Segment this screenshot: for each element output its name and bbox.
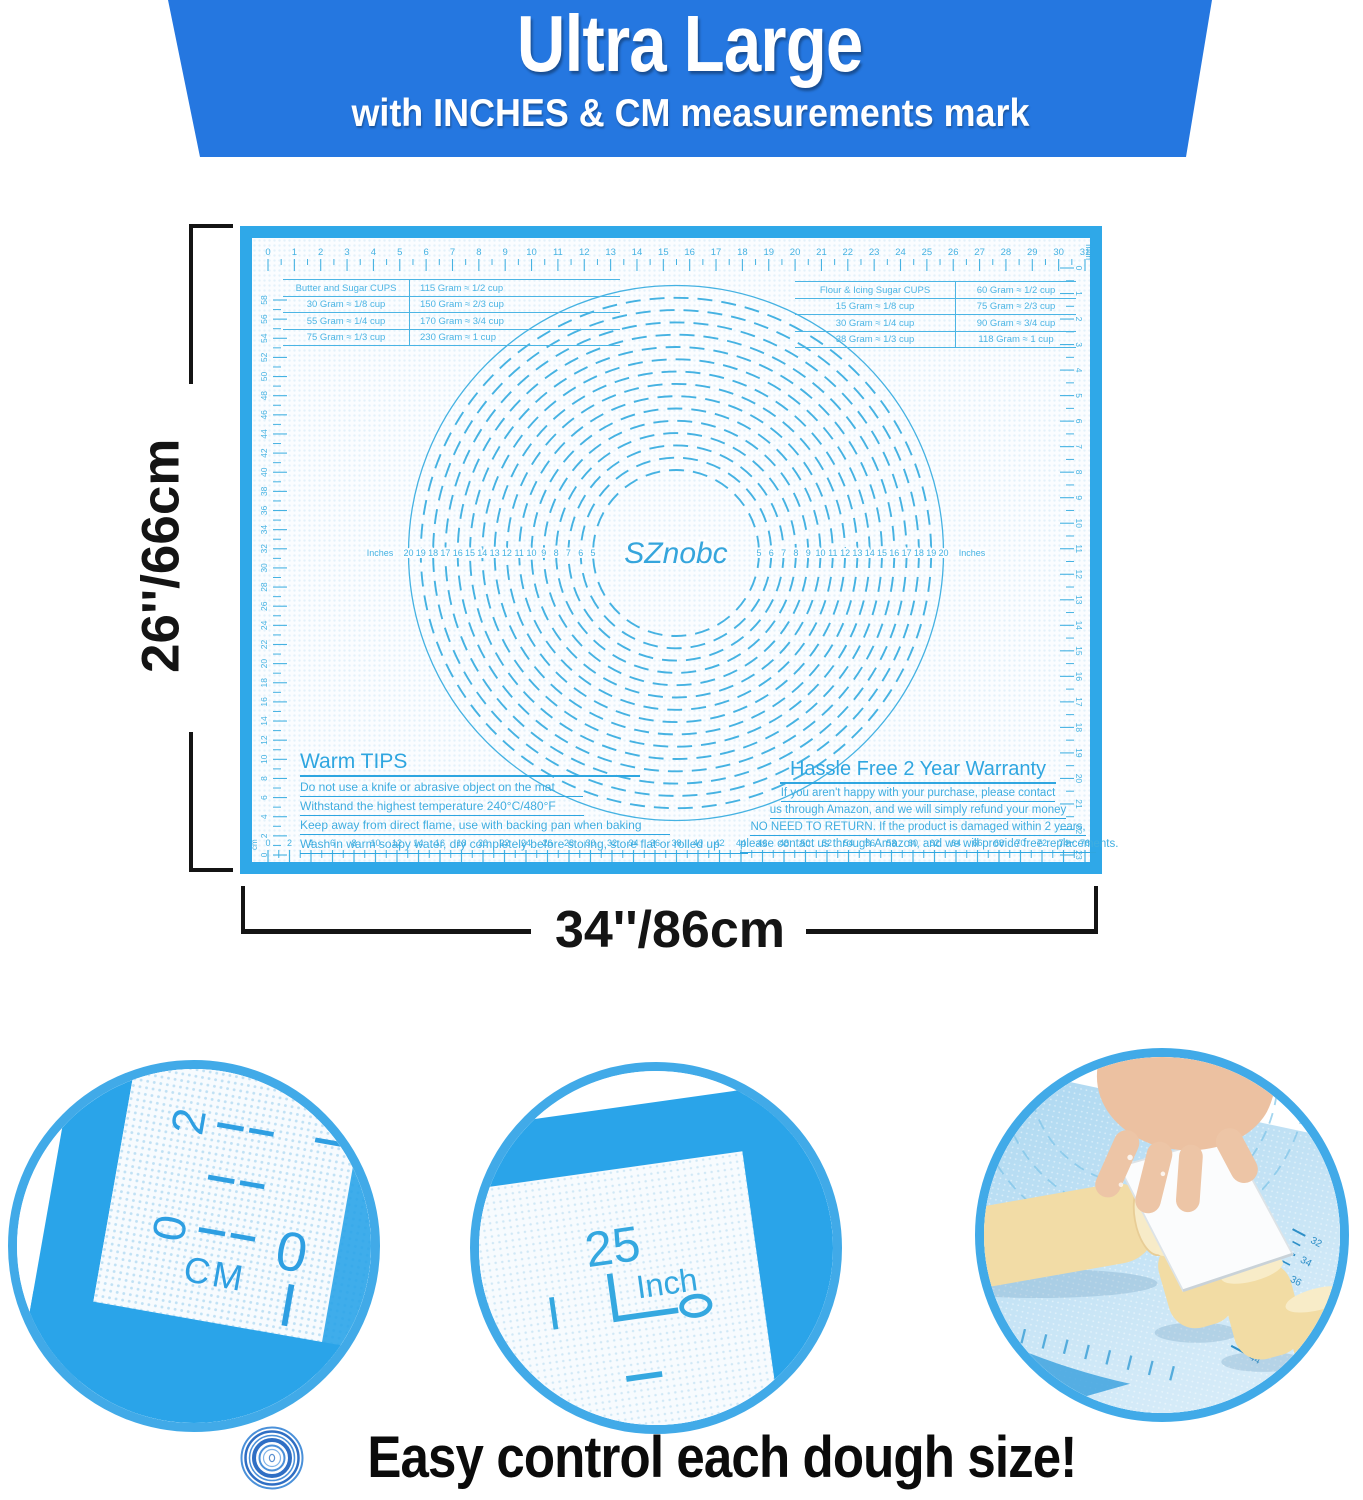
- warm-tips-line: Withstand the highest temperature 240°C/…: [300, 799, 584, 816]
- ruler-number: 56: [259, 314, 269, 324]
- ruler-number: 10: [526, 247, 537, 258]
- width-dimension-line: [806, 929, 1098, 934]
- ring-number: 13: [852, 548, 862, 558]
- ruler-number: 16: [259, 697, 269, 707]
- ruler-number: 20: [259, 659, 269, 669]
- ring-number: 17: [440, 548, 450, 558]
- ruler-number: 34: [259, 525, 269, 535]
- ruler-number: 24: [259, 620, 269, 630]
- ruler-number: 20: [790, 247, 801, 258]
- warranty-line: If you aren't happy with your purchase, …: [781, 787, 1056, 802]
- warm-tips-line: Wash in warm soapy water, dry completely…: [300, 837, 748, 854]
- ruler-number: 23: [869, 247, 880, 258]
- ruler-number: 44: [259, 429, 269, 439]
- ruler-number: 1: [292, 247, 297, 258]
- inch-closeup-callout: 25 Inch: [470, 1062, 842, 1434]
- table-cell: 170 Gram ≈ 3/4 cup: [410, 313, 620, 329]
- table-row: Flour & Icing Sugar CUPS60 Gram ≈ 1/2 cu…: [795, 282, 1076, 299]
- ruler-number: 8: [476, 247, 481, 258]
- ruler-number: 9: [503, 247, 508, 258]
- ruler-number: 0: [265, 838, 270, 848]
- table-cell: 15 Gram ≈ 1/8 cup: [795, 299, 956, 315]
- product-image-page: Ultra Large with INCHES & CM measurement…: [0, 0, 1363, 1500]
- warranty-title: Hassle Free 2 Year Warranty: [780, 758, 1056, 784]
- ruler-number: 15: [658, 247, 669, 258]
- table-cell: 90 Gram ≈ 3/4 cup: [956, 315, 1076, 331]
- table-row: 75 Gram ≈ 1/3 cup230 Gram ≈ 1 cup: [283, 330, 620, 347]
- footer-text: Easy control each dough size!: [367, 1424, 1076, 1491]
- ruler-number: 3: [344, 247, 349, 258]
- banner: Ultra Large with INCHES & CM measurement…: [150, 0, 1230, 157]
- ring-number: 6: [578, 548, 583, 558]
- ring-unit-label: Inches: [367, 548, 394, 558]
- ruler-number: 40: [259, 467, 269, 477]
- table-cell: 118 Gram ≈ 1 cup: [956, 332, 1076, 348]
- ruler-number: 8: [259, 776, 269, 781]
- ruler-number: 18: [1074, 723, 1084, 733]
- ring-number: 6: [769, 548, 774, 558]
- ruler-number: 12: [1074, 570, 1084, 580]
- warm-tips-line: Keep away from direct flame, use with ba…: [300, 818, 670, 835]
- height-dimension-line: [189, 226, 193, 384]
- ruler-number: 21: [816, 247, 827, 258]
- ring-number: 18: [914, 548, 924, 558]
- flour-sugar-conversion-table: Flour & Icing Sugar CUPS60 Gram ≈ 1/2 cu…: [795, 281, 1076, 348]
- ruler-number: 0: [1074, 266, 1084, 271]
- width-dimension-cap: [1094, 886, 1098, 934]
- dough-cutting-photo: 32343638404244: [984, 1057, 1340, 1413]
- ruler-number: 6: [259, 795, 269, 800]
- table-cell: 75 Gram ≈ 1/3 cup: [283, 330, 410, 346]
- warranty-line: us through Amazon, and we will simply re…: [770, 804, 1067, 819]
- ruler-number: 17: [711, 247, 722, 258]
- table-row: 15 Gram ≈ 1/8 cup75 Gram ≈ 2/3 cup: [795, 299, 1076, 316]
- ruler-number: 10: [259, 754, 269, 764]
- table-row: 30 Gram ≈ 1/4 cup90 Gram ≈ 3/4 cup: [795, 315, 1076, 332]
- ruler-number: 18: [737, 247, 748, 258]
- footer-caption: Easy control each dough size!: [0, 1424, 1363, 1491]
- ruler-number: 7: [450, 247, 455, 258]
- ring-number: 9: [806, 548, 811, 558]
- ring-number: 12: [502, 548, 512, 558]
- table-cell: 115 Gram ≈ 1/2 cup: [410, 280, 620, 296]
- height-dimension-cap: [189, 224, 233, 228]
- ring-number: 10: [815, 548, 825, 558]
- ruler-number: 9: [1074, 495, 1084, 500]
- ruler-number: 17: [1074, 697, 1084, 707]
- warranty-block: Hassle Free 2 Year Warranty If you aren'…: [740, 758, 1096, 855]
- ruler-number: 5: [397, 247, 402, 258]
- ruler-number: 54: [259, 333, 269, 343]
- table-cell: 150 Gram ≈ 2/3 cup: [410, 297, 620, 313]
- ruler-number: 24: [895, 247, 906, 258]
- warm-tips-title: Warm TIPS: [300, 750, 640, 777]
- ring-number: 7: [781, 548, 786, 558]
- ruler-unit: Inch: [1084, 244, 1090, 260]
- ring-number: 12: [840, 548, 850, 558]
- ring-number: 11: [515, 548, 524, 558]
- ring-number: 20: [938, 548, 948, 558]
- ring-number: 11: [828, 548, 837, 558]
- ruler-number: 4: [259, 814, 269, 819]
- table-row: Butter and Sugar CUPS115 Gram ≈ 1/2 cup: [283, 280, 620, 297]
- inch-closeup-graphic: 25 Inch: [479, 1071, 833, 1425]
- table-row: 38 Gram ≈ 1/3 cup118 Gram ≈ 1 cup: [795, 332, 1076, 349]
- table-cell: 30 Gram ≈ 1/4 cup: [795, 315, 956, 331]
- baking-mat: 0123456789101112131415161718192021222324…: [240, 226, 1102, 874]
- ruler-number: 58: [259, 295, 269, 305]
- ring-number: 15: [465, 548, 475, 558]
- banner-title: Ultra Large: [517, 4, 863, 84]
- ruler-number: 2: [287, 838, 292, 848]
- ruler-number: 48: [259, 391, 269, 401]
- ring-number: 5: [756, 548, 761, 558]
- warranty-line: please contact us through Amazon, and we…: [740, 838, 1096, 853]
- butter-sugar-conversion-table: Butter and Sugar CUPS115 Gram ≈ 1/2 cup3…: [283, 279, 620, 346]
- ring-number: 20: [403, 548, 413, 558]
- table-cell: 60 Gram ≈ 1/2 cup: [956, 282, 1076, 298]
- ruler-number: 11: [1074, 544, 1084, 553]
- table-cell: 230 Gram ≈ 1 cup: [410, 330, 620, 346]
- table-cell: Butter and Sugar CUPS: [283, 280, 410, 296]
- ruler-number: 14: [1074, 621, 1084, 631]
- ruler-number: 13: [1074, 595, 1084, 605]
- ruler-number: 10: [1074, 518, 1084, 528]
- table-cell: 38 Gram ≈ 1/3 cup: [795, 332, 956, 348]
- ring-number: 8: [554, 548, 559, 558]
- ruler-number: 46: [259, 410, 269, 420]
- table-cell: 75 Gram ≈ 2/3 cup: [956, 299, 1076, 315]
- warm-tips-line: Do not use a knife or abrasive object on…: [300, 780, 583, 797]
- ruler-number: 6: [423, 247, 428, 258]
- ruler-number: 14: [632, 247, 643, 258]
- ring-number: 14: [865, 548, 875, 558]
- ruler-number: 12: [579, 247, 590, 258]
- ruler-number: 16: [1074, 672, 1084, 682]
- ruler-number: 13: [605, 247, 616, 258]
- ruler-number: 16: [684, 247, 695, 258]
- ruler-number: 8: [1074, 470, 1084, 475]
- ruler-number: 26: [259, 601, 269, 611]
- height-dimension-cap: [189, 868, 233, 872]
- ruler-number: 15: [1074, 646, 1084, 656]
- ruler-number: 18: [259, 678, 269, 688]
- ruler-number: 0: [265, 247, 270, 258]
- table-cell: 30 Gram ≈ 1/8 cup: [283, 297, 410, 313]
- ruler-number: 32: [259, 544, 269, 554]
- ruler-unit: cm: [252, 839, 259, 850]
- warm-tips-block: Warm TIPS Do not use a knife or abrasive…: [300, 750, 748, 856]
- ruler-number: 4: [371, 247, 376, 258]
- width-dimension-line: [243, 929, 531, 934]
- brand-logo: SZnobc: [624, 537, 727, 570]
- ruler-number: 6: [1074, 419, 1084, 424]
- ruler-number: 28: [259, 582, 269, 592]
- warranty-line: NO NEED TO RETURN. If the product is dam…: [750, 821, 1085, 836]
- ruler-number: 11: [553, 247, 563, 258]
- ruler-number: 12: [259, 735, 269, 745]
- ruler-number: 36: [259, 506, 269, 516]
- ring-number: 7: [566, 548, 571, 558]
- width-dimension-label: 34''/86cm: [520, 894, 820, 966]
- ruler-number: 22: [259, 639, 269, 649]
- cm-closeup-graphic: 2 0 CM 0: [17, 1069, 371, 1423]
- ruler-number: 22: [843, 247, 854, 258]
- ruler-number: 38: [259, 486, 269, 496]
- ring-number: 5: [590, 548, 595, 558]
- banner-subtitle: with INCHES & CM measurements mark: [351, 92, 1029, 136]
- ruler-number: 52: [259, 352, 269, 362]
- ring-unit-label: Inches: [959, 548, 986, 558]
- ruler-number: 30: [259, 563, 269, 573]
- ring-number: 19: [926, 548, 936, 558]
- height-dimension-line: [189, 732, 193, 872]
- ruler-number: 19: [763, 247, 774, 258]
- table-row: 55 Gram ≈ 1/4 cup170 Gram ≈ 3/4 cup: [283, 313, 620, 330]
- dough-cutting-photo-callout: 32343638404244: [975, 1048, 1349, 1422]
- width-dimension-cap: [241, 886, 245, 934]
- inch-mark-25: 25: [581, 1216, 643, 1278]
- ruler-number: 27: [974, 247, 985, 258]
- ring-number: 16: [889, 548, 899, 558]
- ruler-number: 26: [948, 247, 959, 258]
- ruler-number: 2: [318, 247, 323, 258]
- concentric-circles-icon: [239, 1425, 305, 1491]
- ruler-number: 7: [1074, 444, 1084, 449]
- table-row: 30 Gram ≈ 1/8 cup150 Gram ≈ 2/3 cup: [283, 297, 620, 314]
- table-cell: Flour & Icing Sugar CUPS: [795, 282, 956, 298]
- ring-number: 10: [526, 548, 536, 558]
- ruler-number: 5: [1074, 393, 1084, 398]
- ring-number: 14: [477, 548, 487, 558]
- ruler-number: 19: [1074, 748, 1084, 758]
- ruler-number: 29: [1027, 247, 1038, 258]
- ring-number: 13: [490, 548, 500, 558]
- table-cell: 55 Gram ≈ 1/4 cup: [283, 313, 410, 329]
- ruler-number: 42: [259, 448, 269, 458]
- ruler-number: 14: [259, 716, 269, 726]
- ring-number: 15: [877, 548, 887, 558]
- ring-number: 18: [428, 548, 438, 558]
- ring-number: 19: [416, 548, 426, 558]
- ruler-number: 50: [259, 372, 269, 382]
- ruler-number: 4: [1074, 368, 1084, 373]
- ruler-number: 30: [1053, 247, 1064, 258]
- height-dimension-label: 26''/66cm: [126, 382, 196, 730]
- ruler-number: 28: [1001, 247, 1012, 258]
- ring-number: 17: [902, 548, 912, 558]
- ring-number: 8: [793, 548, 798, 558]
- cm-closeup-callout: 2 0 CM 0: [8, 1060, 380, 1432]
- ring-number: 16: [453, 548, 463, 558]
- ring-number: 9: [541, 548, 546, 558]
- ruler-number: 25: [922, 247, 933, 258]
